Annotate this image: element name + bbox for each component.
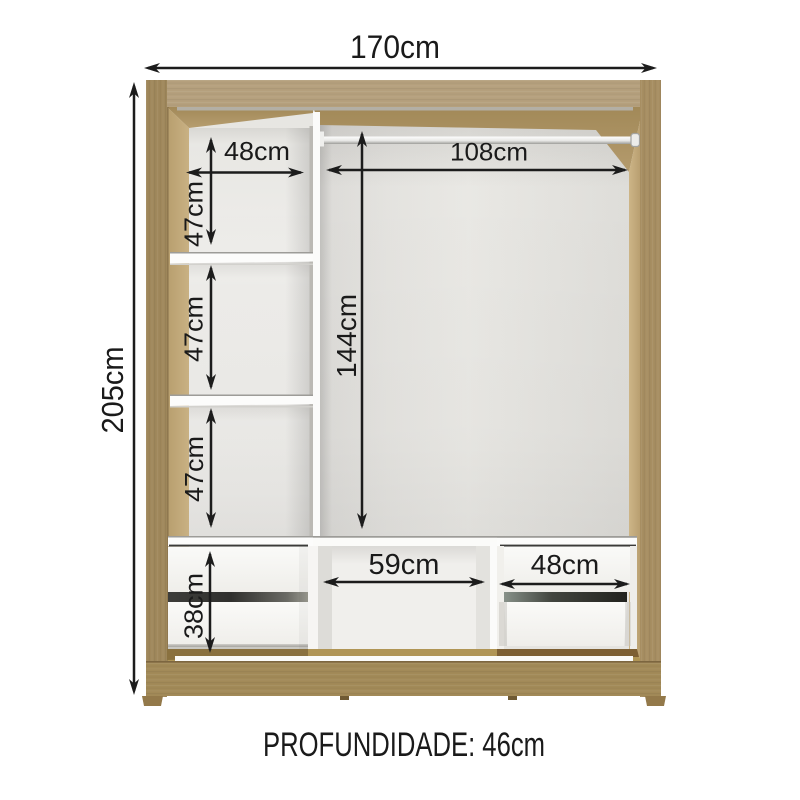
svg-text:PROFUNDIDADE: 46cm: PROFUNDIDADE: 46cm [263, 726, 545, 764]
svg-text:144cm: 144cm [331, 294, 362, 378]
svg-text:48cm: 48cm [224, 136, 290, 166]
svg-text:48cm: 48cm [531, 549, 599, 580]
svg-text:38cm: 38cm [179, 573, 209, 639]
svg-text:47cm: 47cm [179, 436, 209, 502]
svg-text:47cm: 47cm [179, 181, 209, 247]
svg-text:170cm: 170cm [350, 29, 440, 65]
svg-text:205cm: 205cm [95, 347, 130, 434]
svg-text:59cm: 59cm [369, 549, 440, 581]
svg-text:108cm: 108cm [450, 139, 528, 167]
svg-text:47cm: 47cm [179, 296, 209, 362]
